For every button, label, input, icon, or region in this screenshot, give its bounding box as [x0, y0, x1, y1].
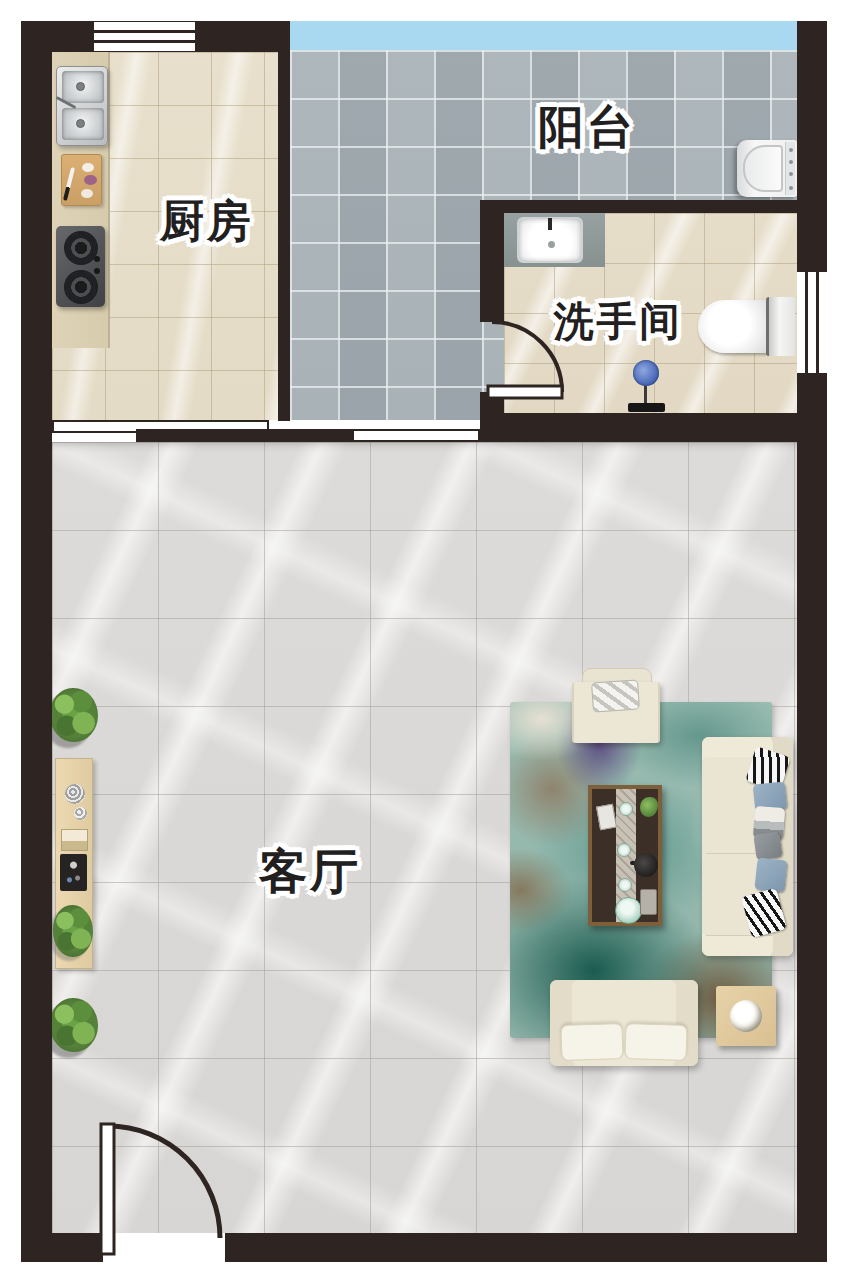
- gas-stove: [56, 226, 105, 307]
- decor-bowl: [730, 1000, 762, 1032]
- potted-plant: [53, 905, 93, 957]
- book-stack: [61, 829, 88, 851]
- tea-tray: [640, 889, 657, 915]
- shower-head: [633, 360, 659, 386]
- sliding-door-panel-right: [352, 429, 480, 442]
- teacup: [619, 802, 633, 816]
- balcony-label: 阳台: [538, 97, 636, 159]
- teacup: [618, 878, 632, 892]
- decor-sphere: [74, 807, 87, 820]
- cutting-board: [61, 154, 102, 206]
- kitchen-window: [94, 22, 195, 51]
- bathroom-left-wall: [480, 200, 504, 322]
- bathroom-label: 洗手间: [554, 294, 683, 349]
- gray-pillow: [753, 831, 782, 860]
- burner-icon: [64, 270, 98, 304]
- shower-base: [628, 403, 665, 412]
- left-wall: [21, 21, 52, 1262]
- bathroom-top-wall: [480, 200, 797, 213]
- washing-machine: [737, 140, 797, 197]
- sofa: [702, 737, 793, 956]
- drain-icon: [548, 241, 555, 248]
- bathroom-bottom-wall: [480, 413, 827, 442]
- armchair-pillow: [591, 679, 640, 712]
- table-plant: [640, 797, 658, 817]
- kitchen-balcony-divider-wall: [278, 21, 290, 421]
- loveseat: [550, 980, 698, 1066]
- seat-pillow: [624, 1023, 687, 1061]
- seat-pillow: [560, 1023, 623, 1061]
- potted-plant: [50, 998, 98, 1052]
- bottom-wall-right: [225, 1233, 827, 1262]
- knife-icon: [63, 167, 75, 201]
- kitchen-label: 厨房: [160, 192, 254, 251]
- toilet-bowl: [698, 300, 772, 353]
- living-room-label: 客厅: [259, 840, 361, 904]
- blue-pillow: [754, 858, 787, 893]
- side-table: [716, 986, 776, 1046]
- floor-plan: 厨房 阳台 洗手间 客厅: [0, 0, 853, 1280]
- teacup: [617, 843, 631, 857]
- decor-tray: [60, 854, 87, 891]
- coffee-table: [588, 785, 662, 926]
- washer-drum: [743, 145, 783, 192]
- balcony-glazing: [290, 21, 797, 50]
- toilet-tank: [766, 297, 795, 356]
- bathroom-window: [797, 272, 827, 373]
- teapot: [634, 853, 658, 877]
- napkin-box: [596, 804, 617, 831]
- celadon-bowl: [615, 897, 642, 924]
- right-wall: [797, 21, 827, 1262]
- shower-stand: [644, 384, 647, 405]
- decor-sphere: [65, 784, 85, 804]
- burner-icon: [64, 231, 98, 265]
- kitchen-sink: [56, 66, 108, 146]
- bottom-wall-left: [21, 1233, 103, 1262]
- faucet-icon: [548, 218, 552, 230]
- potted-plant: [50, 688, 98, 742]
- bathroom-sink: [517, 217, 583, 263]
- washer-control-panel: [785, 142, 795, 195]
- sliding-door-rail: [136, 429, 352, 442]
- zebra-pillow: [741, 888, 787, 938]
